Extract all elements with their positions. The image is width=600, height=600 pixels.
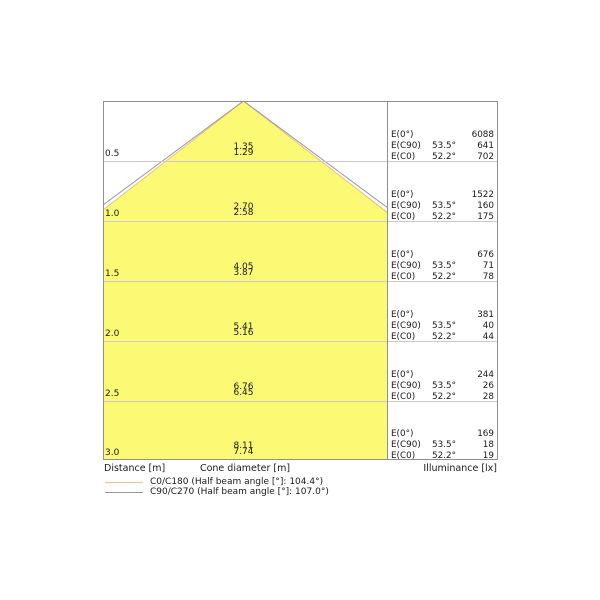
ec0-angle: 52.2° (432, 392, 454, 403)
diameter-c0-value: 3.87 (211, 271, 276, 277)
legend: C0/C180 (Half beam angle [°]: 104.4°) C9… (105, 477, 329, 497)
ec0-angle: 52.2° (432, 272, 454, 283)
axis-label-illuminance: Illuminance [lx] (397, 463, 497, 474)
legend-line-c90-icon (105, 492, 143, 493)
ec0-label: E(C0) (391, 392, 432, 403)
cone-diameter-values: 6.76 6.45 (211, 385, 276, 396)
cone-diameter-values: 2.70 2.58 (211, 205, 276, 216)
ec90-line: E(C90)53.5°18 (391, 440, 494, 451)
e0-value: 169 (454, 429, 494, 440)
ec90-angle: 53.5° (432, 141, 454, 152)
e0-label: E(0°) (391, 190, 432, 201)
ec0-label: E(C0) (391, 152, 432, 163)
distance-label: 2.5 (105, 389, 119, 399)
ec0-label: E(C0) (391, 451, 432, 462)
ec0-line: E(C0)52.2°19 (391, 451, 494, 462)
ec90-label: E(C90) (391, 381, 432, 392)
ec0-label: E(C0) (391, 332, 432, 343)
e0-line: E(0°)6088 (391, 130, 494, 141)
e0-label: E(0°) (391, 130, 432, 141)
e0-label: E(0°) (391, 370, 432, 381)
e0-value: 381 (454, 310, 494, 321)
ec90-value: 160 (454, 201, 494, 212)
ec90-label: E(C90) (391, 440, 432, 451)
cone-diameter-values: 4.05 3.87 (211, 265, 276, 276)
legend-item-c0: C0/C180 (Half beam angle [°]: 104.4°) (105, 477, 329, 487)
ec90-angle: 53.5° (432, 261, 454, 272)
ec0-value: 19 (454, 451, 494, 462)
ec90-value: 26 (454, 381, 494, 392)
e0-line: E(0°)381 (391, 310, 494, 321)
e0-line: E(0°)244 (391, 370, 494, 381)
ec90-angle: 53.5° (432, 201, 454, 212)
distance-label: 2.0 (105, 329, 119, 339)
ec0-label: E(C0) (391, 272, 432, 283)
ec90-label: E(C90) (391, 261, 432, 272)
ec90-value: 18 (454, 440, 494, 451)
diameter-c0-value: 6.45 (211, 391, 276, 397)
table-divider (387, 101, 388, 460)
ec90-value: 71 (454, 261, 494, 272)
ec0-value: 28 (454, 392, 494, 403)
e0-label: E(0°) (391, 310, 432, 321)
ec0-line: E(C0)52.2°702 (391, 152, 494, 163)
e0-line: E(0°)676 (391, 250, 494, 261)
ec90-angle: 53.5° (432, 381, 454, 392)
cone-diameter-values: 8.11 7.74 (211, 444, 276, 455)
ec90-line: E(C90)53.5°71 (391, 261, 494, 272)
legend-label-c0: C0/C180 (Half beam angle [°]: 104.4°) (150, 477, 323, 487)
ec90-label: E(C90) (391, 141, 432, 152)
axis-label-cone-diameter: Cone diameter [m] (103, 463, 387, 474)
legend-line-c0-icon (105, 482, 143, 483)
ec90-angle: 53.5° (432, 321, 454, 332)
e0-value: 1522 (454, 190, 494, 201)
ec90-value: 40 (454, 321, 494, 332)
distance-label: 1.0 (105, 209, 119, 219)
ec0-angle: 52.2° (432, 332, 454, 343)
cone-diameter-values: 1.35 1.29 (211, 145, 276, 156)
ec90-label: E(C90) (391, 321, 432, 332)
ec0-value: 44 (454, 332, 494, 343)
ec90-value: 641 (454, 141, 494, 152)
illuminance-cell: E(0°)381 E(C90)53.5°40 E(C0)52.2°44 (391, 310, 494, 343)
ec0-line: E(C0)52.2°44 (391, 332, 494, 343)
legend-item-c90: C90/C270 (Half beam angle [°]: 107.0°) (105, 487, 329, 497)
diameter-c0-value: 7.74 (211, 450, 276, 456)
ec0-label: E(C0) (391, 212, 432, 223)
distance-label: 1.5 (105, 269, 119, 279)
ec0-angle: 52.2° (432, 152, 454, 163)
ec90-line: E(C90)53.5°641 (391, 141, 494, 152)
ec90-angle: 53.5° (432, 440, 454, 451)
ec0-line: E(C0)52.2°28 (391, 392, 494, 403)
distance-label: 3.0 (105, 448, 119, 458)
illuminance-cell: E(0°)169 E(C90)53.5°18 E(C0)52.2°19 (391, 429, 494, 462)
e0-label: E(0°) (391, 429, 432, 440)
cone-diagram: 0.5 1.35 1.29 E(0°)6088 E(C90)53.5°641 E… (0, 0, 600, 600)
distance-label: 0.5 (105, 149, 119, 159)
ec90-line: E(C90)53.5°26 (391, 381, 494, 392)
cone-diameter-values: 5.41 5.16 (211, 325, 276, 336)
e0-value: 6088 (454, 130, 494, 141)
ec90-label: E(C90) (391, 201, 432, 212)
plot-area: 0.5 1.35 1.29 E(0°)6088 E(C90)53.5°641 E… (103, 101, 498, 460)
ec0-value: 78 (454, 272, 494, 283)
ec0-angle: 52.2° (432, 212, 454, 223)
e0-value: 676 (454, 250, 494, 261)
ec0-angle: 52.2° (432, 451, 454, 462)
diameter-c0-value: 5.16 (211, 331, 276, 337)
e0-line: E(0°)169 (391, 429, 494, 440)
illuminance-cell: E(0°)6088 E(C90)53.5°641 E(C0)52.2°702 (391, 130, 494, 163)
diameter-c0-value: 1.29 (211, 151, 276, 157)
diameter-c0-value: 2.58 (211, 211, 276, 217)
ec90-line: E(C90)53.5°40 (391, 321, 494, 332)
ec0-line: E(C0)52.2°78 (391, 272, 494, 283)
illuminance-cell: E(0°)1522 E(C90)53.5°160 E(C0)52.2°175 (391, 190, 494, 223)
e0-value: 244 (454, 370, 494, 381)
ec90-line: E(C90)53.5°160 (391, 201, 494, 212)
ec0-value: 175 (454, 212, 494, 223)
illuminance-cell: E(0°)676 E(C90)53.5°71 E(C0)52.2°78 (391, 250, 494, 283)
e0-line: E(0°)1522 (391, 190, 494, 201)
legend-label-c90: C90/C270 (Half beam angle [°]: 107.0°) (150, 487, 329, 497)
ec0-value: 702 (454, 152, 494, 163)
illuminance-cell: E(0°)244 E(C90)53.5°26 E(C0)52.2°28 (391, 370, 494, 403)
e0-label: E(0°) (391, 250, 432, 261)
ec0-line: E(C0)52.2°175 (391, 212, 494, 223)
